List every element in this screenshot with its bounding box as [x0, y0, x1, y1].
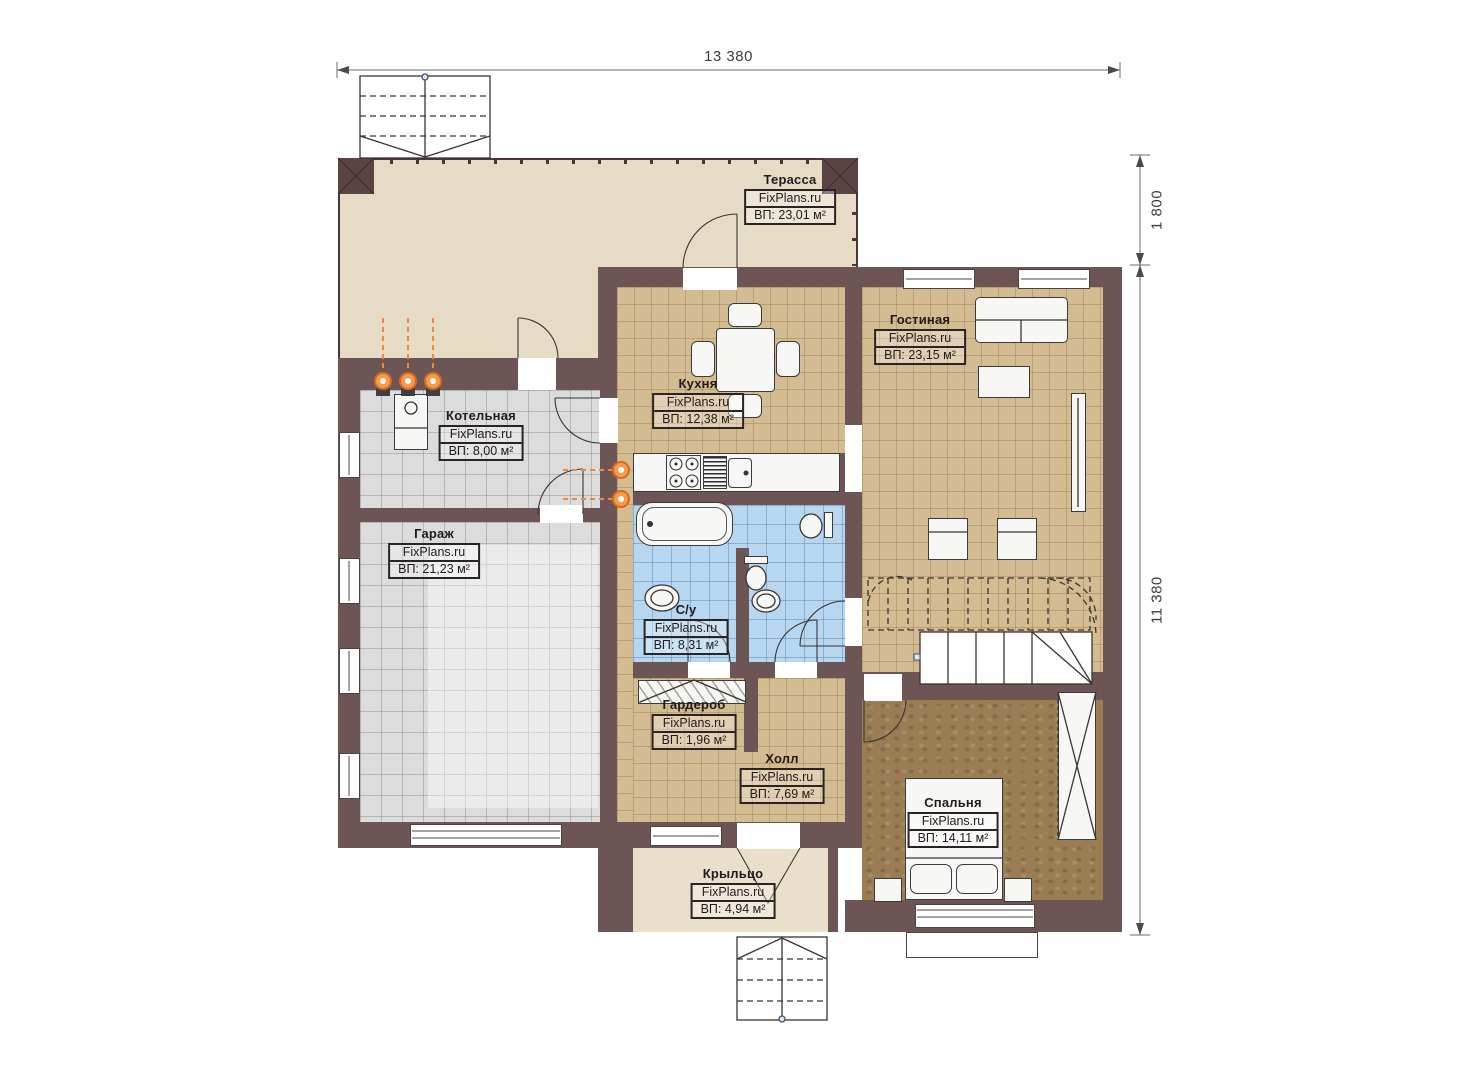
pillow-2: [956, 864, 998, 894]
terrace-floor-lower: [338, 267, 598, 358]
toilet-tank-left: [744, 556, 768, 564]
room-name: Терасса: [764, 172, 817, 187]
room-label-boiler: Котельная FixPlans.ru ВП: 8,00 м²: [439, 408, 524, 461]
wall-porch-left: [598, 848, 633, 932]
room-label-bathroom: С/у FixPlans.ru ВП: 8,31 м²: [644, 602, 729, 655]
terrace-post-left: [338, 158, 374, 194]
armchair-2: [997, 518, 1037, 560]
bedroom-wardrobe: [1058, 692, 1096, 840]
door-bathroom-right: [775, 662, 817, 678]
kitchen-sink: [728, 458, 752, 488]
room-label-porch: Крыльцо FixPlans.ru ВП: 4,94 м²: [691, 866, 776, 919]
bedroom-window-step: [906, 932, 1038, 958]
room-info-box: FixPlans.ru ВП: 8,31 м²: [644, 619, 729, 655]
room-brand: FixPlans.ru: [742, 770, 823, 787]
room-name: Гостиная: [890, 312, 950, 327]
sofa: [975, 297, 1068, 343]
room-brand: FixPlans.ru: [441, 427, 522, 444]
dimension-width: 13 380: [337, 48, 1120, 65]
room-area: ВП: 4,94 м²: [693, 902, 774, 917]
room-info-box: FixPlans.ru ВП: 14,11 м²: [908, 812, 999, 848]
room-name: Спальня: [924, 795, 982, 810]
room-area: ВП: 14,11 м²: [910, 831, 997, 846]
room-label-garage: Гараж FixPlans.ru ВП: 21,23 м²: [388, 526, 480, 579]
room-area: ВП: 12,38 м²: [654, 412, 742, 427]
armchair-1: [928, 518, 968, 560]
corridor-floor: [617, 453, 633, 822]
room-label-terrace: Терасса FixPlans.ru ВП: 23,01 м²: [744, 172, 836, 225]
toilet-tank-right: [824, 512, 833, 538]
room-info-box: FixPlans.ru ВП: 23,15 м²: [874, 329, 966, 365]
room-brand: FixPlans.ru: [876, 331, 964, 348]
nightstand-1: [874, 878, 902, 902]
room-label-hall: Холл FixPlans.ru ВП: 7,69 м²: [740, 751, 825, 804]
pillow-1: [910, 864, 952, 894]
room-brand: FixPlans.ru: [646, 621, 727, 638]
room-info-box: FixPlans.ru ВП: 7,69 м²: [740, 768, 825, 804]
front-door: [737, 823, 800, 849]
opening-kitchen-living: [845, 425, 862, 492]
window-hall: [650, 826, 722, 846]
wardrobe-wall: [744, 678, 758, 752]
room-area: ВП: 1,96 м²: [654, 733, 735, 748]
room-info-box: FixPlans.ru ВП: 4,94 м²: [691, 883, 776, 919]
room-info-box: FixPlans.ru ВП: 1,96 м²: [652, 714, 737, 750]
dimension-height: 11 380: [1146, 265, 1168, 935]
room-label-bedroom: Спальня FixPlans.ru ВП: 14,11 м²: [908, 795, 999, 848]
door-boiler-garage: [540, 505, 583, 523]
door-boiler-kitchen: [599, 398, 618, 443]
window-living-1: [903, 269, 975, 289]
garage-gate: [410, 824, 562, 846]
room-name: С/у: [676, 602, 697, 617]
door-terrace-boiler: [518, 358, 556, 390]
room-label-wardrobe: Гардероб FixPlans.ru ВП: 1,96 м²: [652, 697, 737, 750]
kitchen-chair-top: [728, 303, 762, 327]
door-kitchen-terrace: [683, 268, 737, 290]
room-label-living: Гостиная FixPlans.ru ВП: 23,15 м²: [874, 312, 966, 365]
door-living-hall: [845, 598, 862, 646]
kitchen-chair-left: [691, 341, 715, 377]
room-area: ВП: 23,01 м²: [746, 208, 834, 223]
room-info-box: FixPlans.ru ВП: 12,38 м²: [652, 393, 744, 429]
room-info-box: FixPlans.ru ВП: 21,23 м²: [388, 543, 480, 579]
room-name: Гараж: [414, 526, 454, 541]
door-bedroom: [864, 674, 902, 701]
door-bathroom-left: [688, 662, 730, 678]
room-area: ВП: 23,15 м²: [876, 348, 964, 363]
garage-parking-pad: [428, 545, 598, 808]
room-brand: FixPlans.ru: [910, 814, 997, 831]
room-name: Кухня: [679, 376, 718, 391]
room-area: ВП: 21,23 м²: [390, 562, 478, 577]
window-boiler: [339, 432, 360, 478]
room-brand: FixPlans.ru: [746, 191, 834, 208]
boiler-unit: [394, 394, 428, 450]
nightstand-2: [1004, 878, 1032, 902]
room-info-box: FixPlans.ru ВП: 8,00 м²: [439, 425, 524, 461]
tv-unit: [1071, 393, 1086, 512]
room-area: ВП: 7,69 м²: [742, 787, 823, 802]
room-name: Крыльцо: [703, 866, 764, 881]
room-brand: FixPlans.ru: [654, 716, 735, 733]
room-name: Гардероб: [662, 697, 725, 712]
room-info-box: FixPlans.ru ВП: 23,01 м²: [744, 189, 836, 225]
window-living-2: [1018, 269, 1090, 289]
bathroom-partition-wall: [736, 548, 749, 662]
terrace-deck-edge-ticks: [338, 160, 858, 164]
dimension-terrace-depth: 1 800: [1146, 155, 1168, 265]
room-label-kitchen: Кухня FixPlans.ru ВП: 12,38 м²: [652, 376, 744, 429]
stove: [666, 455, 701, 490]
room-brand: FixPlans.ru: [693, 885, 774, 902]
window-garage-1: [339, 558, 360, 604]
window-bedroom: [915, 904, 1035, 928]
dish-rack: [703, 456, 727, 489]
window-garage-3: [339, 753, 360, 799]
room-name: Холл: [765, 751, 798, 766]
wall-porch-right: [828, 848, 838, 932]
room-area: ВП: 8,00 м²: [441, 444, 522, 459]
room-area: ВП: 8,31 м²: [646, 638, 727, 653]
bathtub-inner: [642, 507, 727, 541]
window-garage-2: [339, 648, 360, 694]
kitchen-chair-right: [776, 341, 800, 377]
floor-plan: 13 380 1 800 11 380 Терасса FixPlans.ru …: [0, 0, 1473, 1080]
room-brand: FixPlans.ru: [654, 395, 742, 412]
room-name: Котельная: [446, 408, 516, 423]
room-brand: FixPlans.ru: [390, 545, 478, 562]
coffee-table: [978, 366, 1030, 398]
